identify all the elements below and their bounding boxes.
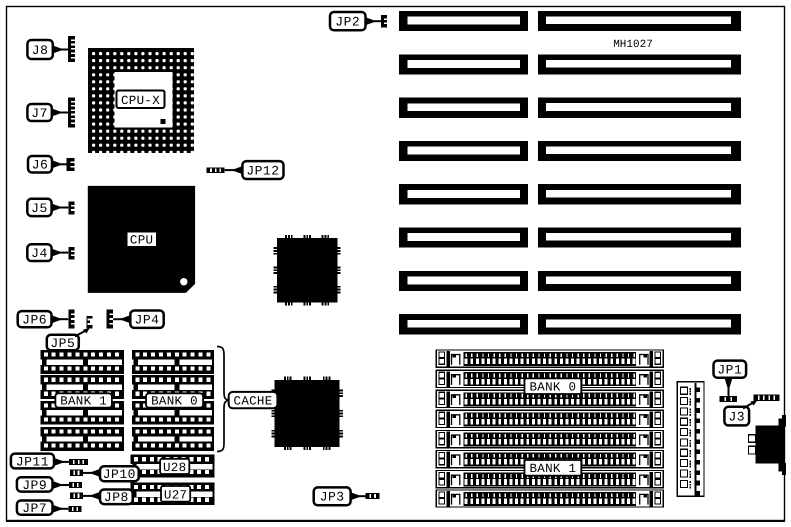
svg-text:J5: J5 bbox=[31, 201, 48, 216]
svg-text:JP2: JP2 bbox=[335, 14, 360, 29]
svg-text:JP6: JP6 bbox=[22, 313, 47, 328]
svg-text:JP7: JP7 bbox=[22, 501, 47, 516]
svg-text:JP8: JP8 bbox=[104, 490, 129, 505]
svg-text:J3: J3 bbox=[728, 409, 745, 424]
svg-text:CPU: CPU bbox=[130, 234, 153, 248]
svg-text:JP11: JP11 bbox=[16, 454, 49, 469]
svg-text:JP12: JP12 bbox=[246, 163, 279, 178]
svg-text:BANK 0: BANK 0 bbox=[151, 395, 198, 409]
svg-text:J6: J6 bbox=[32, 158, 49, 173]
svg-text:CACHE: CACHE bbox=[234, 394, 273, 408]
svg-text:U27: U27 bbox=[164, 488, 187, 502]
svg-text:BANK 0: BANK 0 bbox=[529, 381, 576, 395]
svg-text:JP10: JP10 bbox=[103, 467, 136, 482]
svg-text:JP4: JP4 bbox=[135, 313, 160, 328]
svg-text:BANK 1: BANK 1 bbox=[529, 462, 576, 476]
svg-text:JP1: JP1 bbox=[717, 363, 742, 378]
svg-text:J8: J8 bbox=[32, 43, 49, 58]
svg-text:J7: J7 bbox=[31, 106, 48, 121]
svg-text:CPU-X: CPU-X bbox=[121, 94, 160, 108]
svg-text:JP3: JP3 bbox=[320, 490, 345, 505]
svg-text:JP9: JP9 bbox=[22, 478, 47, 493]
svg-text:JP5: JP5 bbox=[50, 336, 75, 351]
svg-text:U28: U28 bbox=[163, 461, 186, 475]
svg-text:MH1027: MH1027 bbox=[613, 39, 653, 51]
svg-text:BANK 1: BANK 1 bbox=[60, 395, 107, 409]
svg-text:J4: J4 bbox=[31, 246, 48, 261]
